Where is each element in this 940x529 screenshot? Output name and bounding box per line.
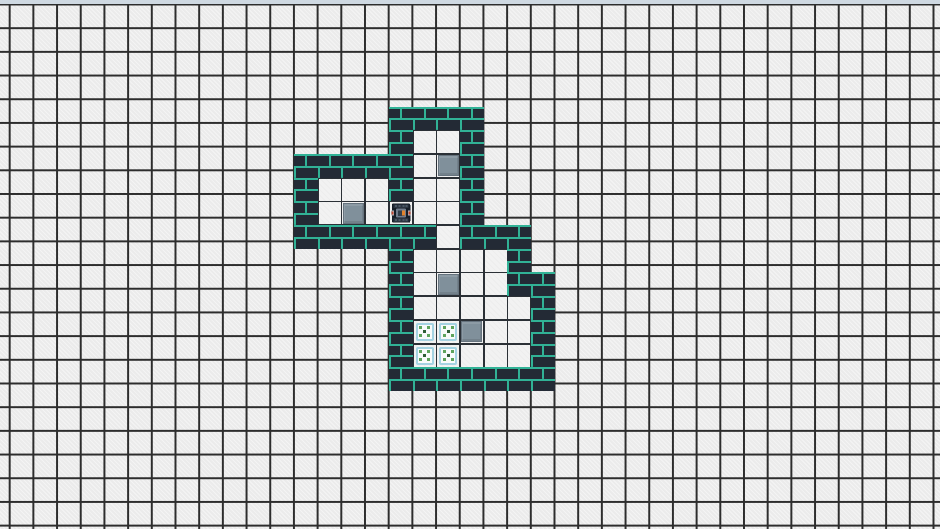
floor-tile	[365, 201, 389, 225]
wall-tile	[318, 225, 342, 249]
wall-tile	[531, 367, 555, 391]
wall-tile	[460, 178, 484, 202]
floor-tile	[507, 296, 531, 320]
wall-tile	[389, 344, 413, 368]
wall-tile	[460, 130, 484, 154]
wall-tile	[531, 344, 555, 368]
wall-tile	[507, 225, 531, 249]
wall-tile	[484, 367, 508, 391]
wall-tile	[507, 249, 531, 273]
wall-tile	[436, 367, 460, 391]
target-marker-icon	[423, 330, 426, 333]
player-robot	[390, 202, 412, 224]
floor-tile	[341, 201, 365, 225]
floor-tile	[484, 249, 508, 273]
target-marker-icon	[423, 354, 426, 357]
floor-tile	[436, 154, 460, 178]
floor-tile	[460, 344, 484, 368]
target-marker-icon	[447, 354, 450, 357]
floor-tile	[460, 272, 484, 296]
floor-tile	[460, 249, 484, 273]
wall-tile	[294, 201, 318, 225]
wall-tile	[436, 107, 460, 131]
crate	[438, 274, 459, 295]
target-tile	[413, 320, 437, 344]
target-pad	[439, 323, 457, 341]
floor-tile	[460, 320, 484, 344]
floor-tile	[460, 296, 484, 320]
floor-tile	[413, 130, 437, 154]
wall-tile	[389, 320, 413, 344]
wall-tile	[460, 154, 484, 178]
floor-tile	[318, 178, 342, 202]
wall-tile	[531, 296, 555, 320]
target-tile	[436, 320, 460, 344]
crate	[438, 155, 459, 176]
floor-tile	[413, 201, 437, 225]
top-strip	[0, 0, 940, 4]
wall-tile	[389, 296, 413, 320]
wall-tile	[531, 272, 555, 296]
game-viewport	[0, 0, 940, 529]
wall-tile	[460, 201, 484, 225]
crate	[343, 203, 364, 224]
floor-tile	[318, 201, 342, 225]
floor-tile	[436, 225, 460, 249]
wall-tile	[460, 225, 484, 249]
floor-tile	[389, 201, 413, 225]
wall-tile	[507, 367, 531, 391]
floor-tile	[365, 178, 389, 202]
floor-tile	[413, 249, 437, 273]
target-pad	[416, 323, 434, 341]
floor-tile	[484, 272, 508, 296]
floor-tile	[507, 320, 531, 344]
floor-tile	[413, 272, 437, 296]
wall-tile	[341, 225, 365, 249]
wall-tile	[294, 225, 318, 249]
wall-tile	[294, 154, 318, 178]
wall-tile	[484, 225, 508, 249]
wall-tile	[389, 249, 413, 273]
floor-tile	[341, 178, 365, 202]
wall-tile	[531, 320, 555, 344]
wall-tile	[318, 154, 342, 178]
floor-tile	[413, 154, 437, 178]
target-tile	[436, 344, 460, 368]
wall-tile	[507, 272, 531, 296]
wall-tile	[460, 367, 484, 391]
wall-tile	[460, 107, 484, 131]
floor-tile	[436, 178, 460, 202]
wall-tile	[389, 272, 413, 296]
wall-tile	[389, 154, 413, 178]
target-pad	[439, 347, 457, 365]
wall-tile	[413, 367, 437, 391]
wall-tile	[365, 154, 389, 178]
wall-tile	[341, 154, 365, 178]
floor-tile	[436, 201, 460, 225]
floor-tile	[484, 320, 508, 344]
floor-tile	[436, 272, 460, 296]
target-tile	[413, 344, 437, 368]
wall-tile	[389, 225, 413, 249]
target-pad	[416, 347, 434, 365]
wall-tile	[413, 225, 437, 249]
floor-tile	[436, 130, 460, 154]
wall-tile	[389, 178, 413, 202]
wall-tile	[389, 107, 413, 131]
wall-tile	[413, 107, 437, 131]
wall-tile	[365, 225, 389, 249]
target-marker-icon	[447, 330, 450, 333]
sokoban-level[interactable]	[294, 107, 555, 391]
wall-tile	[389, 130, 413, 154]
floor-tile	[413, 178, 437, 202]
wall-tile	[294, 178, 318, 202]
wall-tile	[389, 367, 413, 391]
floor-tile	[507, 344, 531, 368]
floor-tile	[484, 344, 508, 368]
floor-tile	[436, 249, 460, 273]
crate	[461, 321, 482, 342]
floor-tile	[413, 296, 437, 320]
floor-tile	[436, 296, 460, 320]
floor-tile	[484, 296, 508, 320]
